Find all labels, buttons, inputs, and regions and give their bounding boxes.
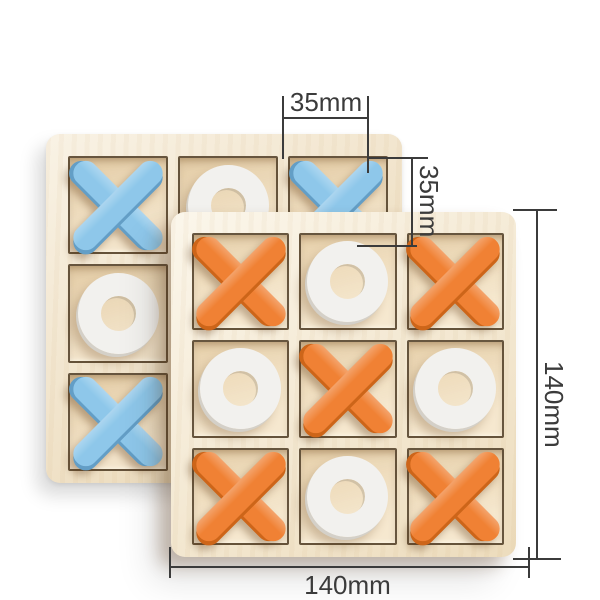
x-piece <box>73 377 163 467</box>
o-piece <box>78 273 159 354</box>
x-piece <box>410 451 500 541</box>
dim-tick <box>513 558 561 560</box>
o-piece <box>307 241 388 322</box>
foreground-board <box>171 212 516 557</box>
dim-label-cell-width: 35mm <box>283 89 369 115</box>
dim-label-board-height: 140mm <box>541 361 567 449</box>
x-piece <box>196 451 286 541</box>
o-piece <box>307 456 388 537</box>
board-cell <box>68 156 168 254</box>
o-piece <box>200 348 281 429</box>
board-cell <box>192 233 289 330</box>
x-piece <box>73 160 163 250</box>
dim-line <box>169 566 530 568</box>
x-piece <box>196 237 286 327</box>
board-cell <box>192 448 289 545</box>
o-piece <box>415 348 496 429</box>
dim-label-board-width: 140mm <box>295 572 400 598</box>
board-cell <box>407 448 504 545</box>
x-piece <box>410 237 500 327</box>
dim-tick <box>513 209 557 211</box>
board-cell <box>68 264 168 362</box>
dim-tick <box>528 547 530 578</box>
board-cell <box>192 340 289 437</box>
product-photo: 35mm 35mm 140mm 140mm <box>0 0 600 600</box>
dim-line <box>536 209 538 560</box>
dim-line <box>282 117 369 119</box>
board-cell <box>407 233 504 330</box>
board-cell <box>299 233 396 330</box>
board-cell <box>299 340 396 437</box>
board-cell <box>407 340 504 437</box>
board-cell <box>68 373 168 471</box>
x-piece <box>303 344 393 434</box>
board-cell <box>299 448 396 545</box>
dim-tick <box>169 547 171 578</box>
